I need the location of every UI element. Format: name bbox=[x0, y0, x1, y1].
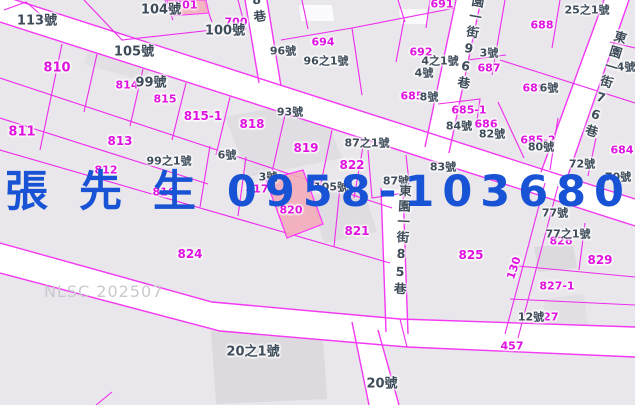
parcel-number-label: 824 bbox=[177, 248, 202, 260]
parcel-number-label: 457 bbox=[501, 341, 524, 352]
parcel-number-label: 819 bbox=[293, 142, 318, 154]
parcel-number-label: 815 bbox=[154, 94, 177, 105]
house-number-label: 20之1號 bbox=[226, 346, 279, 359]
nlsc-watermark: NLSC 202507 bbox=[44, 282, 163, 301]
house-number-label: 84號 bbox=[446, 121, 472, 132]
house-number-label: 20號 bbox=[366, 378, 397, 391]
house-number-label: 6號 bbox=[218, 150, 237, 161]
house-number-label: 113號 bbox=[17, 15, 57, 28]
parcel-number-label: 813 bbox=[107, 135, 132, 147]
parcel-number-label: 691 bbox=[431, 0, 454, 10]
house-number-label: 104號 bbox=[141, 4, 181, 17]
cadastral-map-viewport[interactable]: 701700691692694687688689685685-1686685-2… bbox=[0, 0, 635, 405]
house-number-label: 87之1號 bbox=[345, 138, 390, 149]
parcel-number-label: 815-1 bbox=[184, 110, 222, 122]
house-number-label: 4之1號 bbox=[421, 56, 458, 67]
house-number-label: 6號 bbox=[540, 83, 559, 94]
parcel-number-label: 685-1 bbox=[451, 105, 486, 116]
house-number-label: 8號 bbox=[420, 92, 439, 103]
parcel-number-label: 821 bbox=[344, 225, 369, 237]
parcel-number-label: 687 bbox=[478, 63, 501, 74]
parcel-number-label: 684 bbox=[611, 145, 634, 156]
parcel-number-label: 811 bbox=[8, 126, 35, 139]
house-number-label: 105號 bbox=[114, 46, 154, 59]
house-number-label: 100號 bbox=[205, 25, 245, 38]
house-number-label: 99之1號 bbox=[147, 156, 192, 167]
house-number-label: 12號 bbox=[518, 312, 544, 323]
house-number-label: 80號 bbox=[528, 142, 554, 153]
parcel-number-label: 825 bbox=[458, 249, 483, 261]
parcel-number-label: 694 bbox=[312, 37, 335, 48]
parcel-number-label: 827-1 bbox=[539, 281, 574, 292]
parcel-number-label: 818 bbox=[239, 118, 264, 130]
parcel-number-label: 810 bbox=[43, 62, 70, 75]
house-number-label: 96之1號 bbox=[304, 56, 349, 67]
house-number-label: 77之1號 bbox=[546, 229, 591, 240]
house-number-label: 96號 bbox=[270, 46, 296, 57]
house-number-label: 93號 bbox=[277, 107, 303, 118]
house-number-label: 82號 bbox=[479, 129, 505, 140]
house-number-label: 99號 bbox=[135, 77, 166, 90]
house-number-label: 4號 bbox=[415, 68, 434, 79]
contact-overlay: 張 先 生 0958-103680 bbox=[5, 171, 632, 214]
house-number-label: 25之1號 bbox=[565, 5, 610, 16]
parcel-number-label: 688 bbox=[531, 20, 554, 31]
parcel-number-label: 829 bbox=[587, 254, 612, 266]
house-number-label: 3號 bbox=[480, 48, 499, 59]
